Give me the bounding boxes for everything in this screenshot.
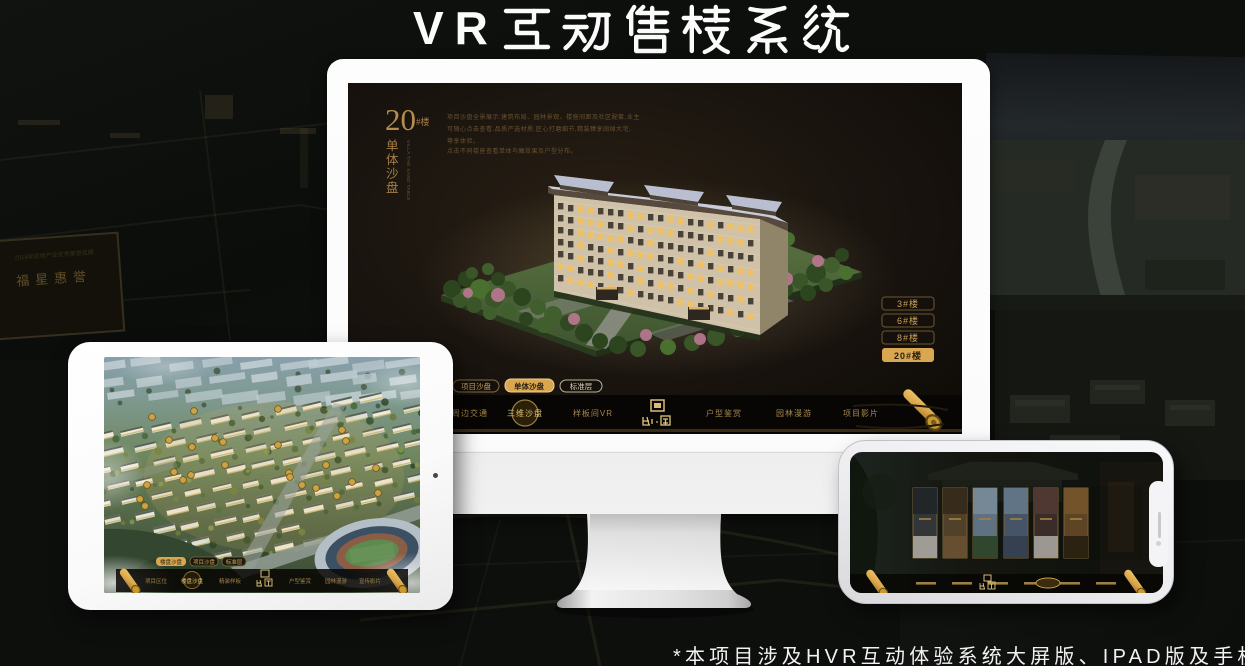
svg-text:体: 体 bbox=[386, 153, 399, 167]
svg-text:项目沙盘: 项目沙盘 bbox=[193, 558, 216, 566]
svg-text:单体沙盘: 单体沙盘 bbox=[514, 381, 544, 391]
svg-text:3#楼: 3#楼 bbox=[897, 298, 919, 309]
svg-text:周边交通: 周边交通 bbox=[452, 408, 488, 418]
svg-text:项目区位: 项目区位 bbox=[145, 577, 168, 585]
svg-text:点击不同楼座查看单体鸟瞰效果及户型分布。: 点击不同楼座查看单体鸟瞰效果及户型分布。 bbox=[447, 147, 577, 155]
svg-text:VR: VR bbox=[413, 3, 499, 54]
svg-text:户型鉴赏: 户型鉴赏 bbox=[706, 408, 742, 418]
svg-text:项目影片: 项目影片 bbox=[843, 408, 879, 418]
svg-text:#楼: #楼 bbox=[416, 116, 430, 127]
svg-text:20#楼: 20#楼 bbox=[894, 350, 922, 361]
svg-text:户型鉴赏: 户型鉴赏 bbox=[289, 577, 312, 585]
svg-text:8#楼: 8#楼 bbox=[897, 332, 919, 343]
svg-text:楼盘沙盘: 楼盘沙盘 bbox=[160, 558, 183, 566]
svg-text:园林漫游: 园林漫游 bbox=[776, 408, 812, 418]
svg-text:20: 20 bbox=[385, 102, 416, 137]
svg-text:沙: 沙 bbox=[386, 167, 399, 181]
svg-text:精装样板: 精装样板 bbox=[219, 577, 242, 585]
svg-text:VILLA THE SAND TABLE: VILLA THE SAND TABLE bbox=[406, 140, 411, 201]
svg-text:宣传影片: 宣传影片 bbox=[359, 577, 381, 585]
svg-text:标准层: 标准层 bbox=[570, 381, 593, 391]
svg-text:6#楼: 6#楼 bbox=[897, 315, 919, 326]
svg-text:标准层: 标准层 bbox=[226, 558, 243, 566]
svg-text:可随心点击查看,品质严选材质,匠心打磨细节,精装臻享阔绰大宅: 可随心点击查看,品质严选材质,匠心打磨细节,精装臻享阔绰大宅, bbox=[447, 125, 631, 133]
svg-text:三维沙盘: 三维沙盘 bbox=[507, 408, 543, 418]
svg-text:尊享体验。: 尊享体验。 bbox=[447, 137, 480, 145]
svg-text:盘: 盘 bbox=[386, 180, 399, 195]
svg-text:项目沙盘: 项目沙盘 bbox=[461, 381, 491, 391]
svg-text:项目沙盘全景展示:建筑布局、园林景观、楼座间距及社区配套,业: 项目沙盘全景展示:建筑布局、园林景观、楼座间距及社区配套,业主 bbox=[447, 113, 640, 121]
svg-text:单: 单 bbox=[386, 139, 399, 153]
svg-text:样板间VR: 样板间VR bbox=[573, 408, 613, 418]
svg-text:园林漫游: 园林漫游 bbox=[325, 577, 348, 585]
svg-text:楼盘沙盘: 楼盘沙盘 bbox=[181, 577, 204, 585]
